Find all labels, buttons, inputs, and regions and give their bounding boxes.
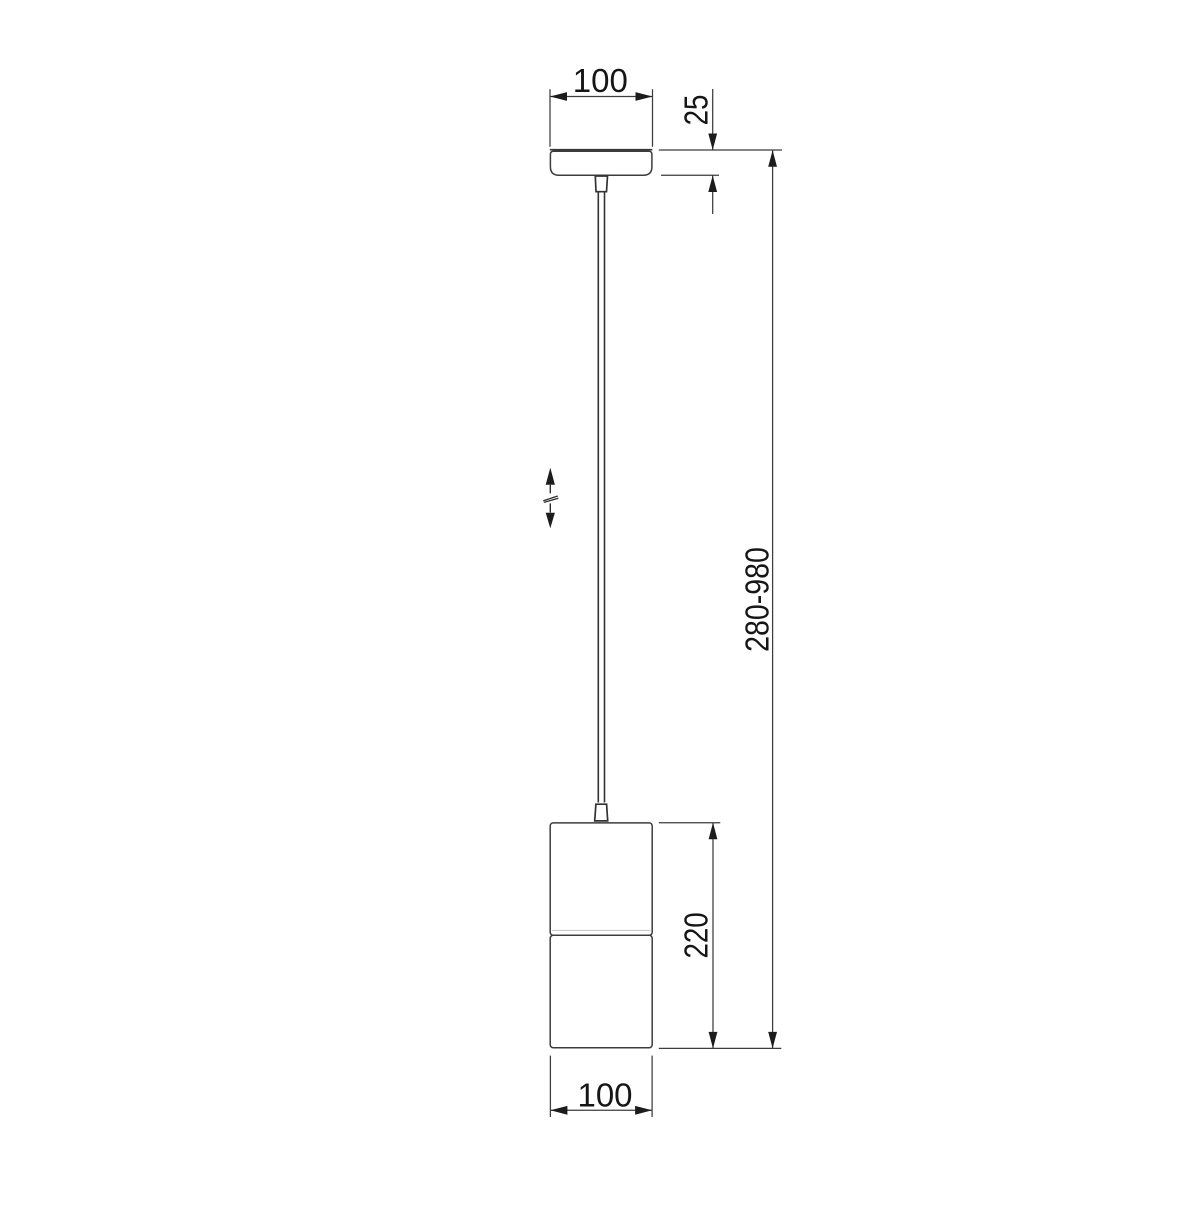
svg-text:100: 100 (577, 1077, 632, 1114)
svg-text:25: 25 (678, 95, 715, 126)
svg-text:100: 100 (573, 62, 628, 99)
svg-text:280-980: 280-980 (739, 547, 776, 652)
svg-text:220: 220 (678, 912, 715, 958)
